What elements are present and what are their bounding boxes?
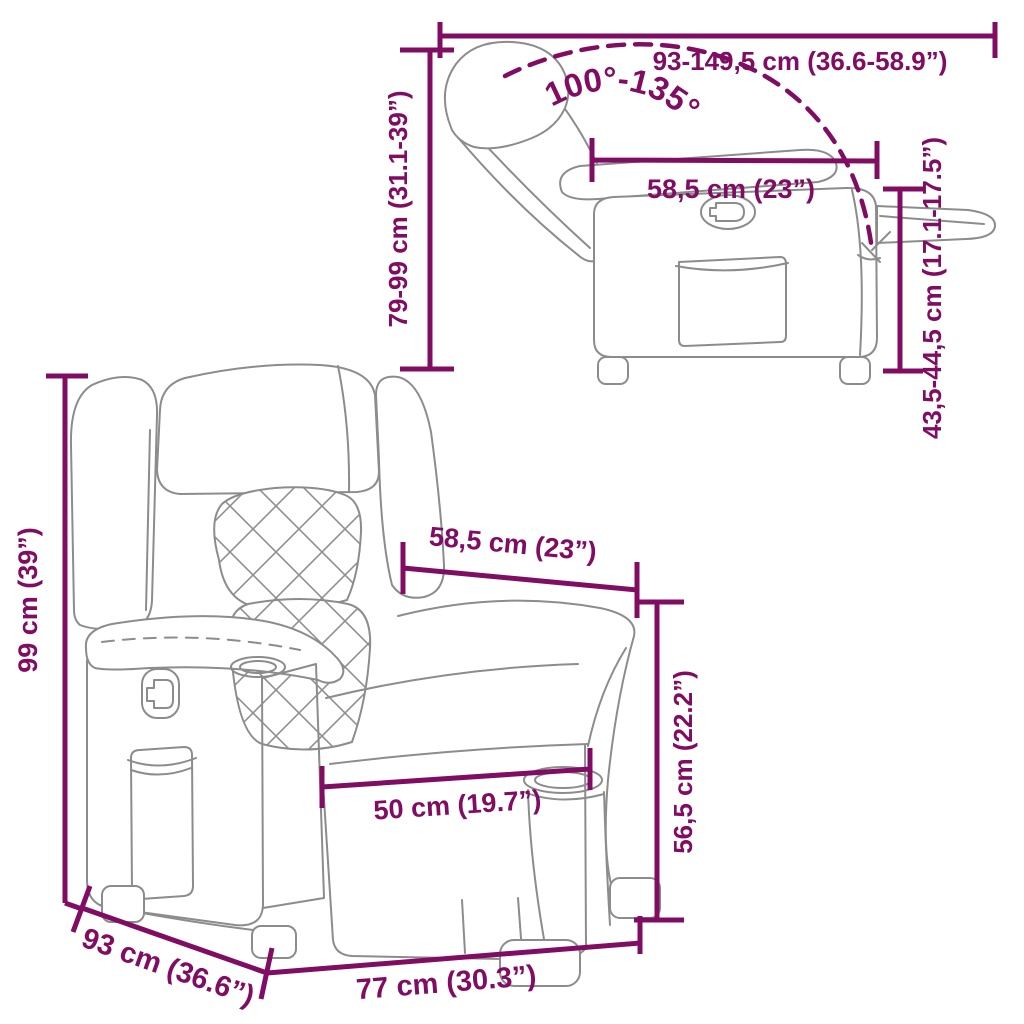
front-lumbar-pillow-upper <box>214 487 361 609</box>
front-seat-front-edge <box>330 744 588 764</box>
front-side-pocket-flap <box>128 758 196 775</box>
dim-side-seat-height-label: 43,5-44,5 cm (17.1-17.5”) <box>917 137 947 439</box>
dim-side-total-length-label: 93-149,5 cm (36.6-58.9”) <box>653 46 948 76</box>
front-release-handle-lever <box>147 680 173 708</box>
dim-front-total-width-label: 77 cm (30.3”) <box>355 960 538 1006</box>
front-foot-mid-left <box>252 926 296 958</box>
dim-front-total-width <box>267 916 640 973</box>
side-body <box>594 188 877 357</box>
front-view-illustration <box>71 365 660 986</box>
front-foot-right <box>610 878 660 918</box>
dim-front-back-width-label: 58,5 cm (23”) <box>428 521 598 567</box>
front-right-armrest <box>398 601 634 888</box>
dimension-diagram: 93-149,5 cm (36.6-58.9”) 100°-135° 79-99… <box>0 0 1024 1024</box>
dim-front-seat-width-label: 50 cm (19.7”) <box>373 784 543 825</box>
side-view-illustration <box>445 42 995 384</box>
dim-front-armrest-height-label: 56,5 cm (22.2”) <box>668 670 698 854</box>
front-back-right-wing <box>376 377 444 598</box>
side-foot-left <box>598 357 628 384</box>
diagram-canvas: 93-149,5 cm (36.6-58.9”) 100°-135° 79-99… <box>0 0 1024 1024</box>
dim-front-total-height-label: 99 cm (39”) <box>13 527 43 673</box>
front-back-left-wing <box>71 377 157 630</box>
side-foot-right <box>840 357 870 384</box>
front-headrest-cushion <box>157 365 379 494</box>
dim-side-seat-depth-label: 58,5 cm (23”) <box>647 174 815 204</box>
dim-side-back-height-label: 79-99 cm (31.1-39”) <box>383 90 413 327</box>
